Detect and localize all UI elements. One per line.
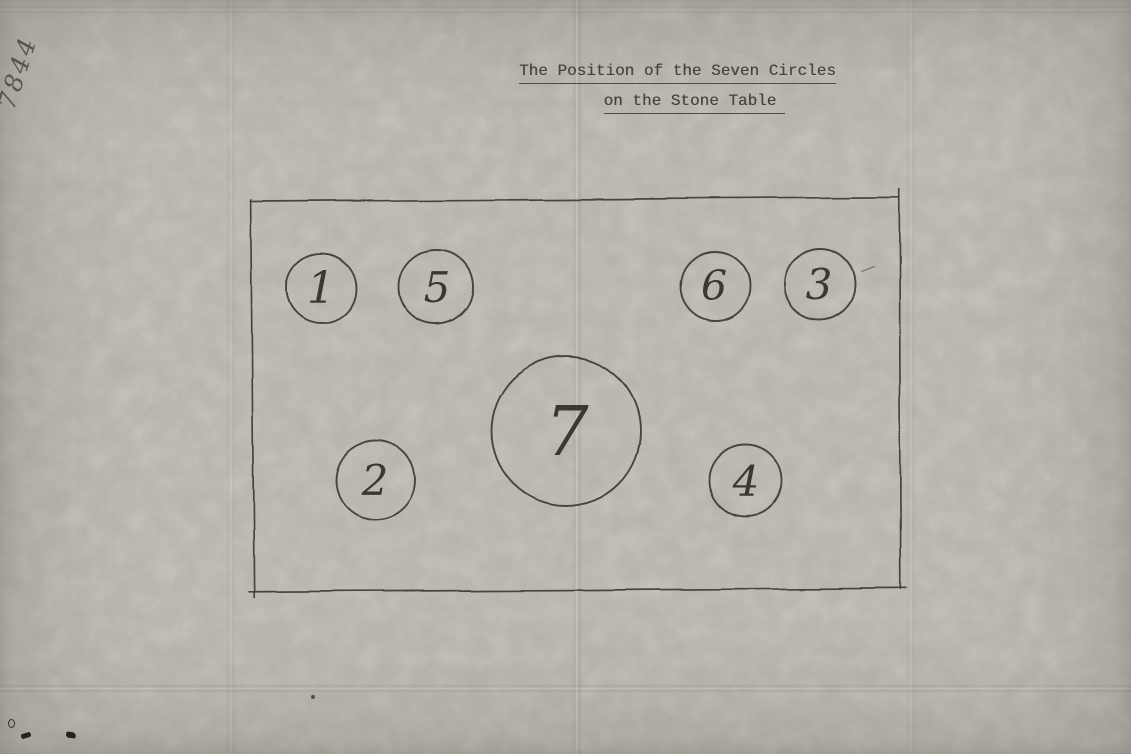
table-outline-left [251,200,255,598]
stray-pencil-mark [861,267,874,272]
circle-7-number: 7 [545,393,589,472]
stone-table-diagram: 1 5 6 3 7 2 4 [0,0,1131,754]
table-outline-top [251,197,899,201]
circle-6-number: 6 [701,262,727,310]
circle-3-number: 3 [806,260,833,309]
scanned-page: 7844 The Position of the Seven Circles o… [0,0,1131,754]
table-outline-right [899,189,901,590]
circle-4-number: 4 [732,457,760,506]
table-outline-bottom [249,588,907,592]
circle-2-number: 2 [361,456,389,505]
circle-1-number: 1 [307,263,335,314]
circle-5-number: 5 [424,263,451,312]
